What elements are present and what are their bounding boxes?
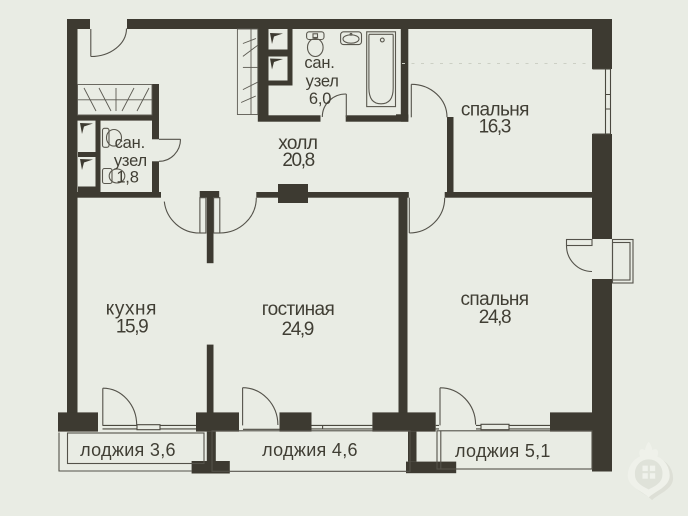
svg-text:16,3: 16,3 [479, 116, 511, 137]
svg-text:1,8: 1,8 [116, 168, 138, 186]
svg-text:сан.: сан. [115, 134, 145, 152]
svg-text:лоджия 4,6: лоджия 4,6 [262, 440, 358, 460]
svg-text:узел: узел [114, 152, 147, 170]
svg-text:лоджия 3,6: лоджия 3,6 [80, 440, 176, 460]
svg-text:6,0: 6,0 [309, 90, 331, 108]
svg-text:20,8: 20,8 [282, 150, 314, 171]
svg-text:лоджия 5,1: лоджия 5,1 [455, 441, 551, 461]
svg-text:24,9: 24,9 [282, 319, 314, 340]
svg-text:15,9: 15,9 [116, 317, 148, 338]
svg-text:узел: узел [306, 73, 339, 91]
svg-text:гостиная: гостиная [262, 299, 334, 320]
svg-text:24,8: 24,8 [479, 307, 511, 328]
svg-text:сан.: сан. [304, 54, 334, 72]
